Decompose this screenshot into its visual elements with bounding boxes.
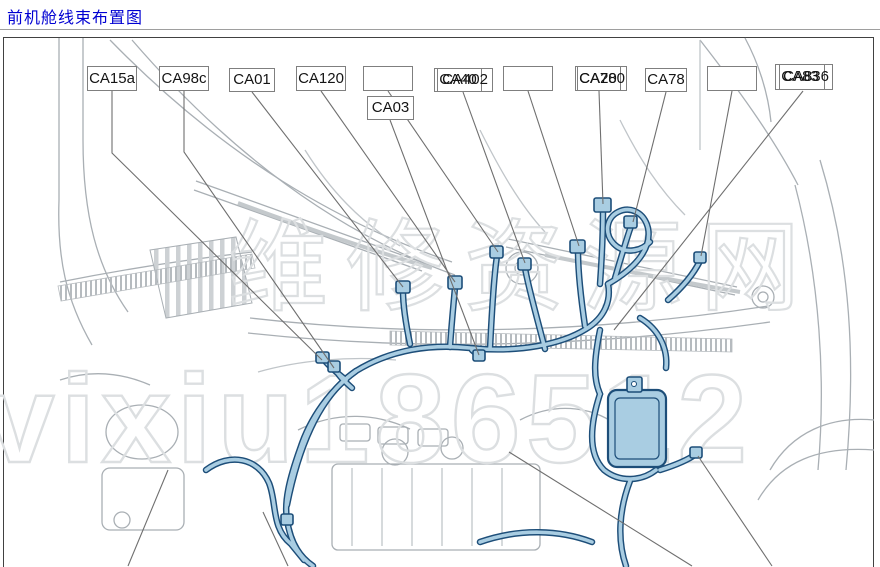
connector-label-ca402: CA402 — [437, 68, 493, 92]
connector-marker — [281, 514, 293, 525]
connector-marker — [690, 447, 702, 458]
connector-label-ca78: CA78 — [645, 68, 687, 92]
connector-label-ca780: CA780 — [577, 66, 627, 91]
connector-label-ca98c: CA98c — [159, 66, 209, 91]
connector-label-ca120: CA120 — [296, 66, 346, 91]
connector-label-blank-3 — [707, 66, 757, 91]
leader-lines — [112, 91, 803, 566]
connector-label-blank-1 — [363, 66, 413, 91]
connector-marker — [518, 258, 531, 270]
connector-label-ca03: CA03 — [367, 96, 414, 120]
connector-label-ca15a: CA15a — [87, 66, 137, 91]
connector-marker — [490, 246, 503, 258]
connector-label-blank-2 — [503, 66, 553, 91]
connector-label-ca836: CA836 — [779, 64, 833, 90]
connector-label-ca01: CA01 — [229, 68, 275, 92]
connector-marker — [694, 252, 706, 263]
connector-marker — [624, 216, 637, 228]
fuse-relay-box — [608, 377, 666, 467]
wiring-layout-page: 前机舱线束布置图 — [0, 0, 880, 567]
connector-marker — [473, 350, 485, 361]
